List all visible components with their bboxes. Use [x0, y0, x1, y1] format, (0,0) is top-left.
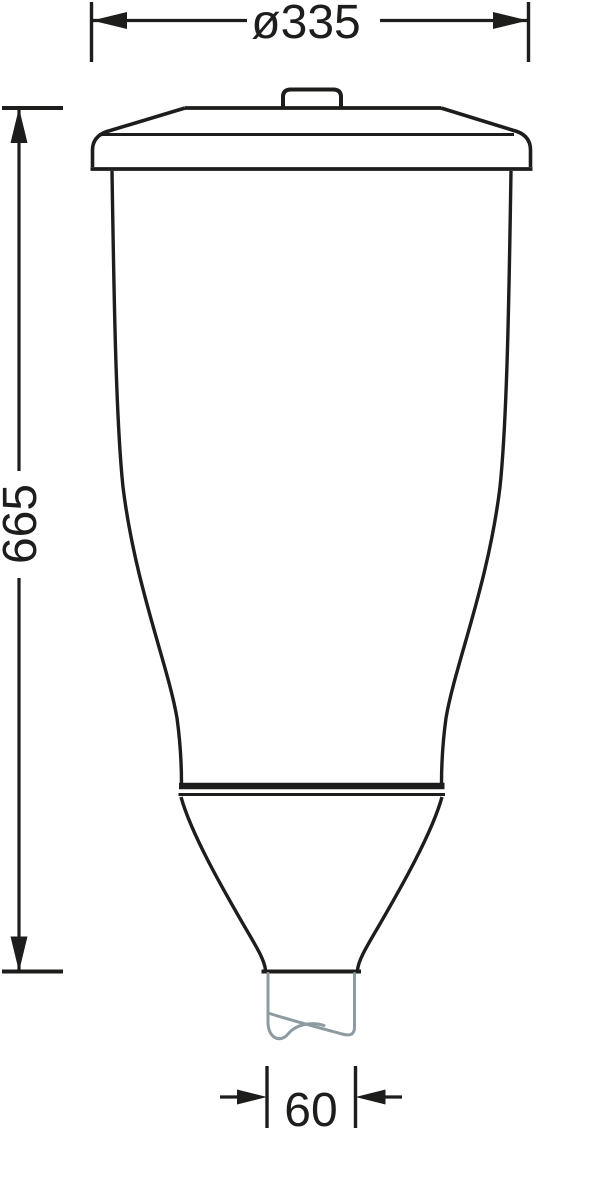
dimension-label-height: 665 — [0, 484, 47, 564]
arrowhead-height-top — [11, 108, 28, 143]
luminaire-body — [112, 171, 511, 795]
body-right-edge — [442, 171, 512, 784]
arrowhead-diameter-right — [493, 12, 528, 29]
funnel-right-edge — [358, 797, 443, 970]
luminaire-dimension-svg: ø335 665 60 — [0, 0, 606, 1200]
spigot-tube — [268, 974, 355, 1039]
arrowhead-height-bottom — [11, 937, 28, 972]
arrowhead-diameter-left — [92, 12, 127, 29]
dimension-label-diameter: ø335 — [251, 0, 360, 49]
dimension-label-spigot-width: 60 — [284, 1084, 337, 1137]
funnel-left-edge — [181, 797, 266, 970]
arrowhead-spigot-right — [356, 1090, 386, 1105]
cap-right-profile — [441, 108, 531, 167]
body-left-edge — [112, 171, 182, 784]
dimension-drawing: ø335 665 60 — [0, 0, 606, 1200]
cap-knob — [283, 90, 341, 108]
spigot-left-edge-and-loop — [268, 974, 324, 1039]
black-linework — [2, 2, 533, 1128]
cap-left-profile — [93, 108, 186, 167]
luminaire-cap — [91, 90, 533, 170]
luminaire-funnel — [181, 797, 442, 972]
arrowhead-spigot-left — [237, 1090, 267, 1105]
